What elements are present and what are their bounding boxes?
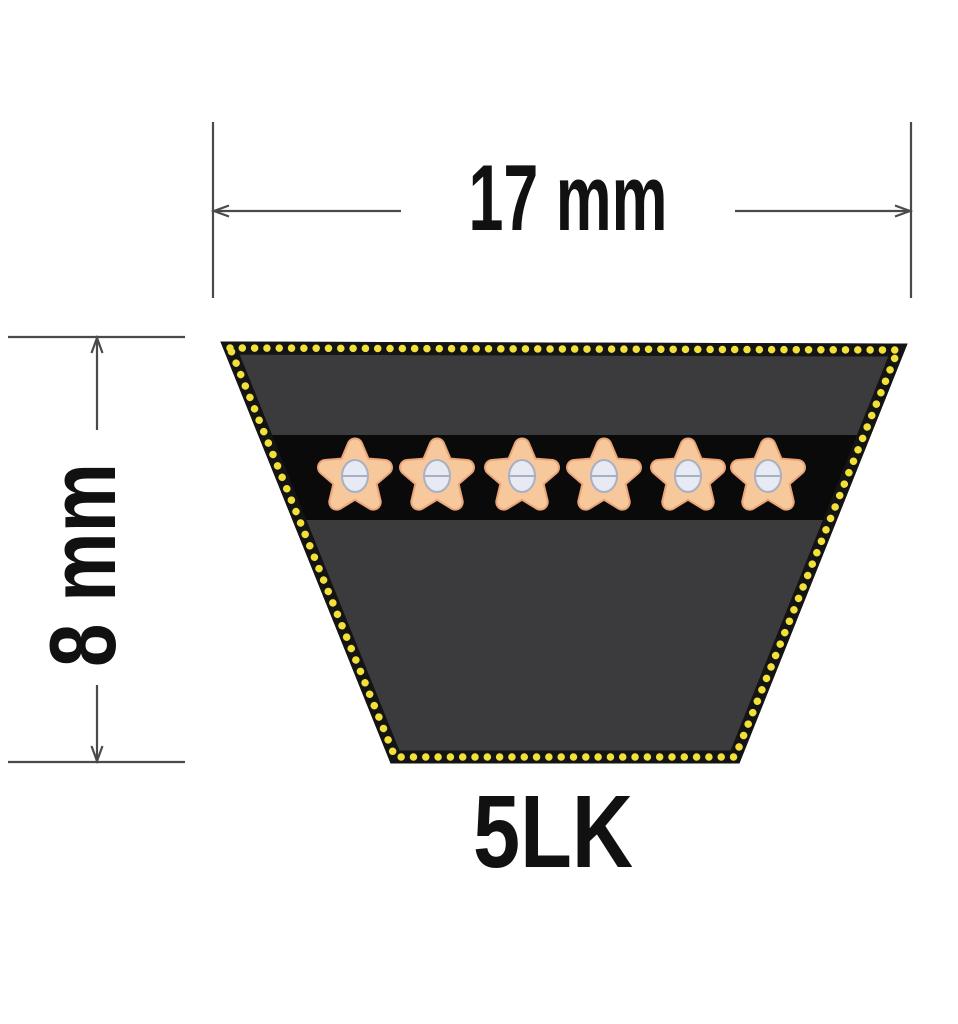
belt-cross-section-diagram: 17 mm 8 mm 5LK <box>0 0 958 1024</box>
product-code-label: 5LK <box>473 774 633 889</box>
diagram-canvas: 17 mm 8 mm 5LK <box>0 0 958 1024</box>
top-width-dimension-label: 17 mm <box>469 145 668 250</box>
side-height-dimension-label: 8 mm <box>30 463 135 667</box>
